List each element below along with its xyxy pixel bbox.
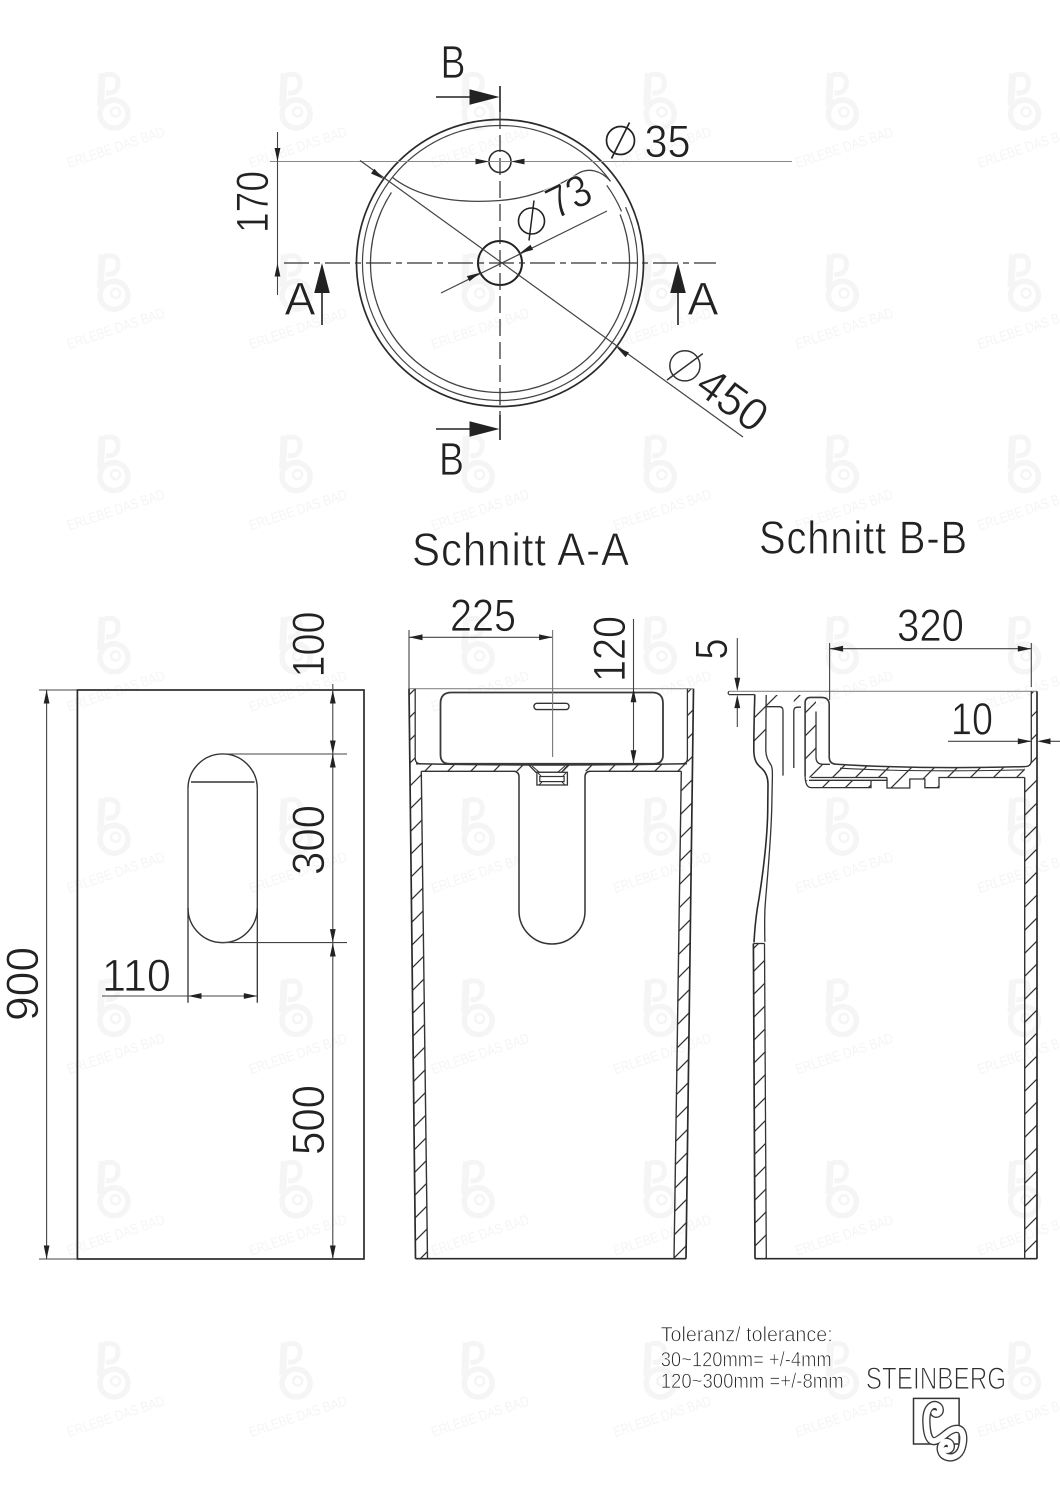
svg-text:Toleranz/ tolerance:: Toleranz/ tolerance: [661,1323,833,1347]
svg-text:A: A [285,273,316,325]
svg-text:B: B [439,433,464,485]
svg-text:300: 300 [283,805,334,875]
svg-text:170: 170 [227,171,278,233]
svg-text:Schnitt B-B: Schnitt B-B [759,512,968,564]
svg-text:5: 5 [686,639,737,660]
svg-text:110: 110 [102,950,171,1001]
svg-text:A: A [688,273,719,325]
svg-text:30~120mm= +/-4mm: 30~120mm= +/-4mm [661,1347,832,1371]
svg-text:900: 900 [0,947,48,1021]
svg-text:Schnitt A-A: Schnitt A-A [412,523,630,575]
svg-text:STEINBERG: STEINBERG [866,1360,1007,1396]
svg-text:10: 10 [951,694,993,745]
svg-text:B: B [441,36,466,88]
svg-text:35: 35 [645,116,691,167]
svg-text:225: 225 [450,590,516,641]
svg-text:120: 120 [584,616,635,682]
svg-text:320: 320 [897,600,964,651]
svg-text:100: 100 [283,612,334,678]
svg-text:500: 500 [283,1085,334,1155]
svg-text:120~300mm =+/-8mm: 120~300mm =+/-8mm [661,1369,844,1393]
